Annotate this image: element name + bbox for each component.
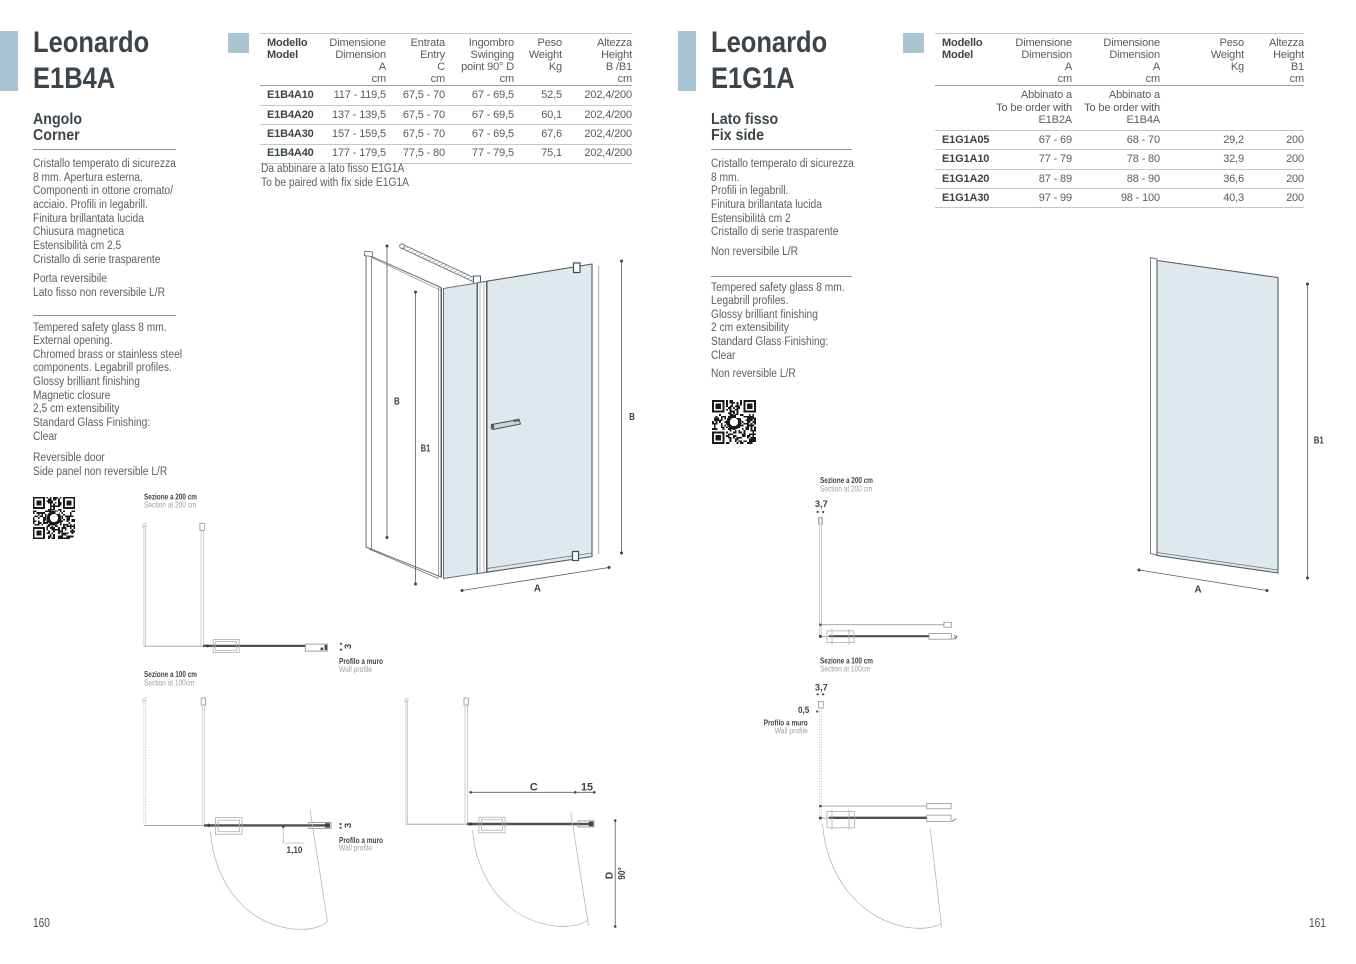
svg-text:90°: 90° [617, 867, 628, 880]
svg-text:3,7: 3,7 [815, 499, 828, 510]
svg-text:Wall profile: Wall profile [775, 727, 808, 736]
svg-text:Section at 200 cm: Section at 200 cm [820, 484, 873, 493]
svg-text:15: 15 [581, 782, 593, 794]
svg-text:Wall profile: Wall profile [339, 844, 372, 853]
svg-text:B1: B1 [421, 443, 431, 455]
svg-text:3: 3 [343, 823, 354, 828]
svg-text:0,5: 0,5 [798, 705, 810, 716]
svg-text:1,10: 1,10 [287, 845, 303, 856]
svg-text:Section at 200 cm: Section at 200 cm [144, 501, 197, 510]
svg-text:Wall profile: Wall profile [339, 665, 372, 674]
svg-text:Section at 100cm: Section at 100cm [144, 679, 195, 688]
svg-text:3: 3 [343, 644, 354, 649]
svg-text:Section at 100cm: Section at 100cm [820, 665, 871, 674]
svg-text:B1: B1 [1314, 435, 1324, 447]
svg-text:B: B [629, 412, 635, 423]
svg-text:D: D [604, 871, 616, 879]
svg-text:A: A [1194, 583, 1202, 595]
svg-text:B: B [394, 397, 400, 408]
svg-text:C: C [530, 782, 538, 794]
svg-text:3,7: 3,7 [815, 682, 828, 693]
